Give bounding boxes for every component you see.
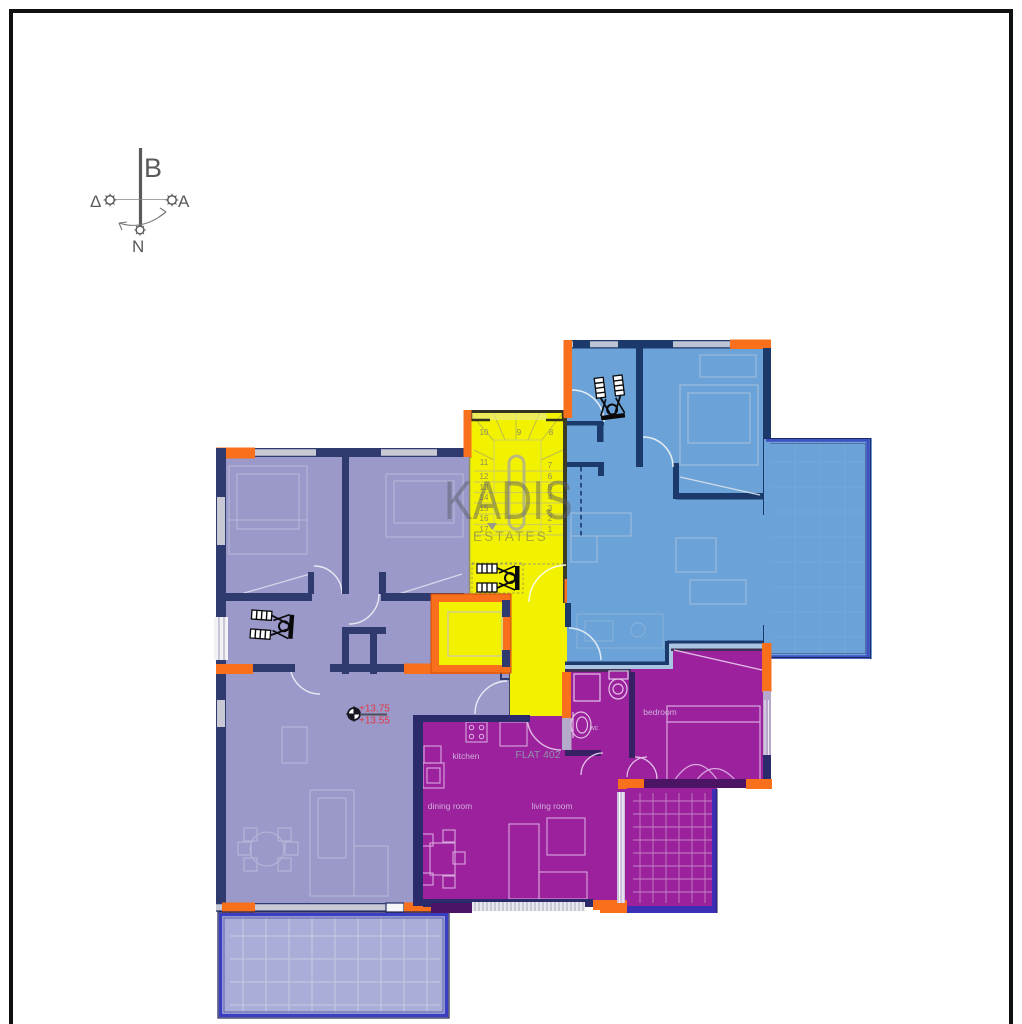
svg-text:+13.75: +13.75 <box>359 704 390 715</box>
svg-text:10: 10 <box>480 428 489 437</box>
svg-text:9: 9 <box>517 428 522 437</box>
svg-text:KADIS: KADIS <box>444 470 573 531</box>
svg-text:B: B <box>144 153 162 183</box>
svg-text:Δ: Δ <box>90 192 101 211</box>
svg-text:living room: living room <box>531 801 572 811</box>
svg-text:bedroom: bedroom <box>643 707 677 717</box>
svg-text:A: A <box>178 192 190 211</box>
svg-text:+13.55: +13.55 <box>359 716 390 727</box>
svg-text:kitchen: kitchen <box>453 751 480 761</box>
svg-text:8: 8 <box>549 428 554 437</box>
svg-text:dining room: dining room <box>428 801 472 811</box>
svg-text:7: 7 <box>548 461 553 470</box>
svg-text:11: 11 <box>480 458 489 467</box>
svg-text:ESTATES: ESTATES <box>473 529 548 544</box>
svg-text:N: N <box>132 237 144 256</box>
svg-text:FLAT 402: FLAT 402 <box>515 749 560 761</box>
